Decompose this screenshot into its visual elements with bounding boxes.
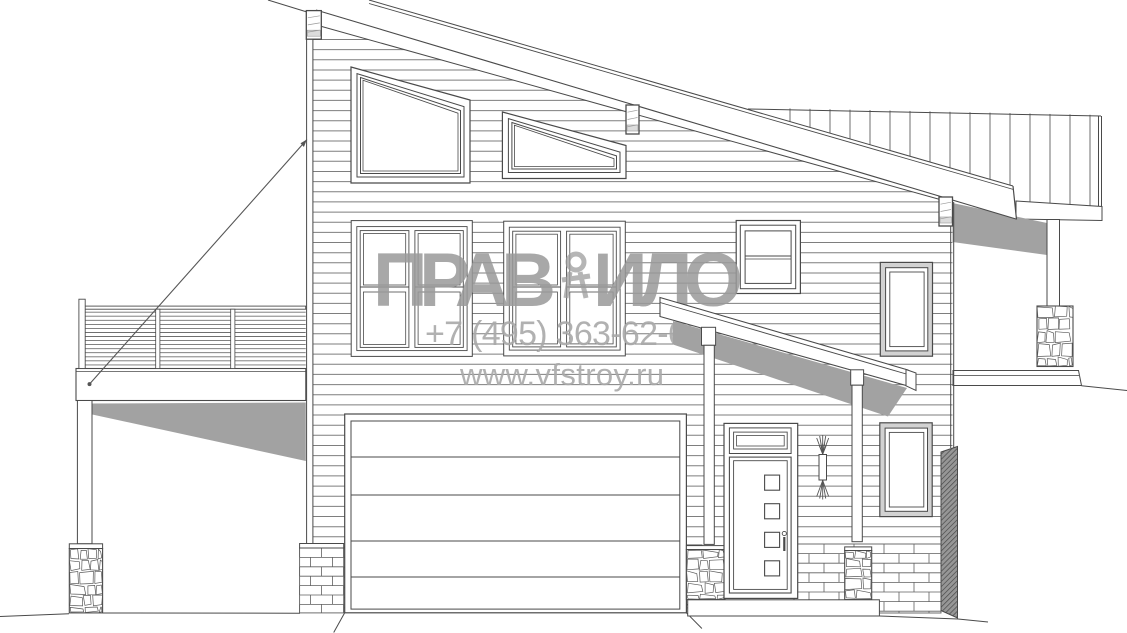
svg-text:+7 (495) 363-62-63: +7 (495) 363-62-63: [425, 315, 705, 353]
svg-text:www.vfstroy.ru: www.vfstroy.ru: [459, 357, 664, 392]
svg-text:ПРАВ: ПРАВ: [373, 238, 556, 323]
